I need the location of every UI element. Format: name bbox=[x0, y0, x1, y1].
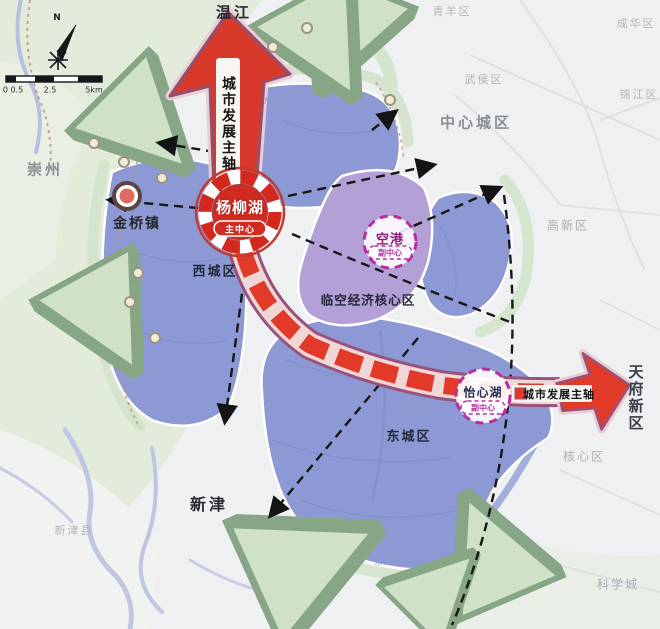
yixin-subcenter-marker bbox=[456, 369, 510, 423]
map-canvas bbox=[0, 0, 660, 629]
urban-planning-map: N 0 0.5 2.5 5km 温江 青羊区 成华区 武侯区 锦江区 中心城区 … bbox=[0, 0, 660, 629]
scale-bar bbox=[6, 76, 102, 82]
airport-subcenter-marker bbox=[364, 216, 416, 268]
main-center-marker bbox=[196, 168, 284, 256]
jinqiao-town-marker bbox=[114, 183, 140, 209]
east-axis-label-strip bbox=[512, 385, 592, 402]
